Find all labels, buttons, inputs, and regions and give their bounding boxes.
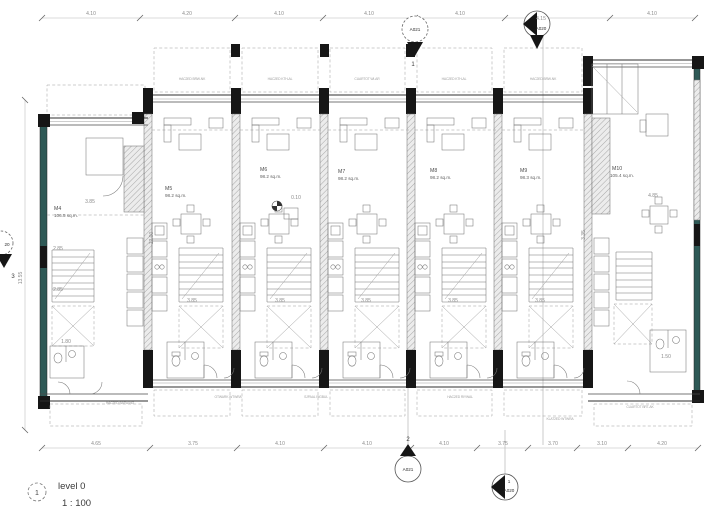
annotation: SJPAAL RIGBUL	[304, 395, 328, 399]
unit-m5-interior	[152, 118, 234, 378]
dim-bottom-8: 3.10	[597, 441, 607, 447]
marker-label: 20	[4, 242, 10, 247]
annotations-bottom: HAC2ED BATW-NG OTWARK WTWRA SJPAAL RIGBU…	[106, 395, 655, 421]
dim-m4-d: 1.80	[61, 339, 71, 345]
annotation: HAC2ED BRW-NK	[530, 77, 557, 81]
unit-m4-id: M4	[54, 206, 61, 212]
level-marker-symbol	[272, 201, 298, 219]
annotation: OTWARK WTWRA	[214, 395, 242, 399]
unit-m8-area: 98.2 sq.m.	[430, 175, 451, 180]
dim-m6-top: 0.10	[291, 195, 301, 201]
dim-interior: 3.85	[187, 298, 197, 304]
section-marker-a020-top: 4.15 A020	[523, 11, 550, 49]
unit-m7-id: M7	[338, 169, 345, 175]
marker-label: A020	[536, 26, 547, 31]
dimension-left: 13.55	[18, 97, 28, 433]
unit-interiors	[152, 118, 584, 378]
annotation: KLAT2ED WTWRA	[547, 417, 575, 421]
dim-interior: 3.85	[275, 298, 285, 304]
dim-top-2: 4.20	[182, 11, 192, 17]
unit-m6-area: 98.2 sq.m.	[260, 174, 281, 179]
marker-number: 1	[508, 479, 511, 484]
unit-m4-area: 106.5 sq.m.	[54, 213, 78, 218]
dimension-chain-top: 4.10 4.20 4.10 4.10 4.10 4.10	[39, 11, 698, 21]
dim-bottom-3: 4.10	[275, 441, 285, 447]
marker-label: A020	[504, 488, 515, 493]
dim-interior: 3.85	[361, 298, 371, 304]
party-walls	[143, 88, 593, 388]
unit-m8-interior	[415, 118, 497, 378]
annotation: CUARTOT BRT-AK	[626, 405, 654, 409]
dim-top-5: 4.10	[455, 11, 465, 17]
dim-bottom-7: 3.70	[548, 441, 558, 447]
unit-m4	[38, 112, 148, 426]
dim-m10-vertical: 3.35	[581, 230, 587, 240]
dim-bottom-5: 4.10	[439, 441, 449, 447]
unit-m5-area: 98.2 sq.m.	[165, 193, 186, 198]
annotation: HAC2ED KTH-AL	[442, 77, 467, 81]
dim-top-4: 4.10	[364, 11, 374, 17]
marker-number: 2	[406, 437, 410, 443]
floor-plan: 4.10 4.20 4.10 4.10 4.10 4.10 4.65 3.75 …	[0, 0, 705, 523]
title-block: 1 level 0 1 : 100	[28, 481, 91, 509]
dim-interior: 3.85	[448, 298, 458, 304]
dim-m5-vertical: 12.00	[149, 232, 155, 245]
unit-m10-id: M10	[612, 166, 622, 172]
marker-label: A021	[410, 27, 421, 32]
view-scale: 1 : 100	[62, 498, 91, 509]
unit-m10	[583, 56, 704, 426]
dimension-chain-bottom: 4.65 3.75 4.10 4.10 4.10 3.75 3.70 3.10 …	[39, 441, 701, 451]
section-marker-left: 20 3	[0, 231, 15, 280]
dim-top-1: 4.10	[86, 11, 96, 17]
dim-top-7: 4.10	[647, 11, 657, 17]
unit-m8-id: M8	[430, 168, 437, 174]
dim-m10-b: 4.85	[648, 193, 658, 199]
dim-top-3: 4.10	[274, 11, 284, 17]
dim-interior: 3.85	[535, 298, 545, 304]
unit-m7-area: 98.2 sq.m.	[338, 176, 359, 181]
section-marker-a020-bottom: 1 A020	[491, 474, 518, 500]
annotation: HAC2ED KTH-AL	[268, 77, 293, 81]
marker-label: A021	[403, 467, 414, 472]
marker-number: 3	[11, 274, 15, 280]
dim-bottom-2: 3.75	[188, 441, 198, 447]
annotation: HAC2ED BRW-NK	[179, 77, 206, 81]
unit-m7-interior	[328, 118, 410, 378]
unit-m10-area: 105.4 sq.m.	[610, 173, 634, 178]
dim-bottom-1: 4.65	[91, 441, 101, 447]
view-name: level 0	[58, 481, 85, 492]
dim-m4-b: 2.85	[53, 246, 63, 252]
annotation: CUARTOT WI-AR	[354, 77, 380, 81]
roofline-columns	[231, 44, 415, 57]
section-marker-a021-top: A021 1	[402, 16, 428, 68]
annotation: HAC2ED RIYWAL	[447, 395, 473, 399]
marker-dim: 4.15	[536, 16, 546, 22]
marker-number: 1	[411, 62, 415, 68]
unit-m9-id: M9	[520, 168, 527, 174]
exterior-walls-middle	[144, 95, 592, 387]
view-number: 1	[35, 490, 39, 497]
unit-m9-area: 98.3 sq.m.	[520, 175, 541, 180]
dim-m4-c: 2.85	[53, 287, 63, 293]
dim-bottom-4: 4.10	[362, 441, 372, 447]
unit-m6-id: M6	[260, 167, 267, 173]
annotation: HAC2ED BATW-NG	[106, 401, 135, 405]
dim-bottom-6: 3.75	[498, 441, 508, 447]
unit-m5-id: M5	[165, 186, 172, 192]
annotations-top: HAC2ED BRW-NK HAC2ED KTH-AL CUARTOT WI-A…	[179, 77, 557, 81]
dim-m4-a: 3.85	[85, 199, 95, 205]
dim-left-total: 13.55	[18, 272, 24, 285]
terraces-bottom	[154, 390, 582, 416]
unit-m6-interior	[240, 118, 322, 378]
dim-m10-a: 1.50	[661, 354, 671, 360]
floor-plan-drawing: 4.10 4.20 4.10 4.10 4.10 4.10 4.65 3.75 …	[0, 0, 705, 523]
dim-bottom-9: 4.20	[657, 441, 667, 447]
